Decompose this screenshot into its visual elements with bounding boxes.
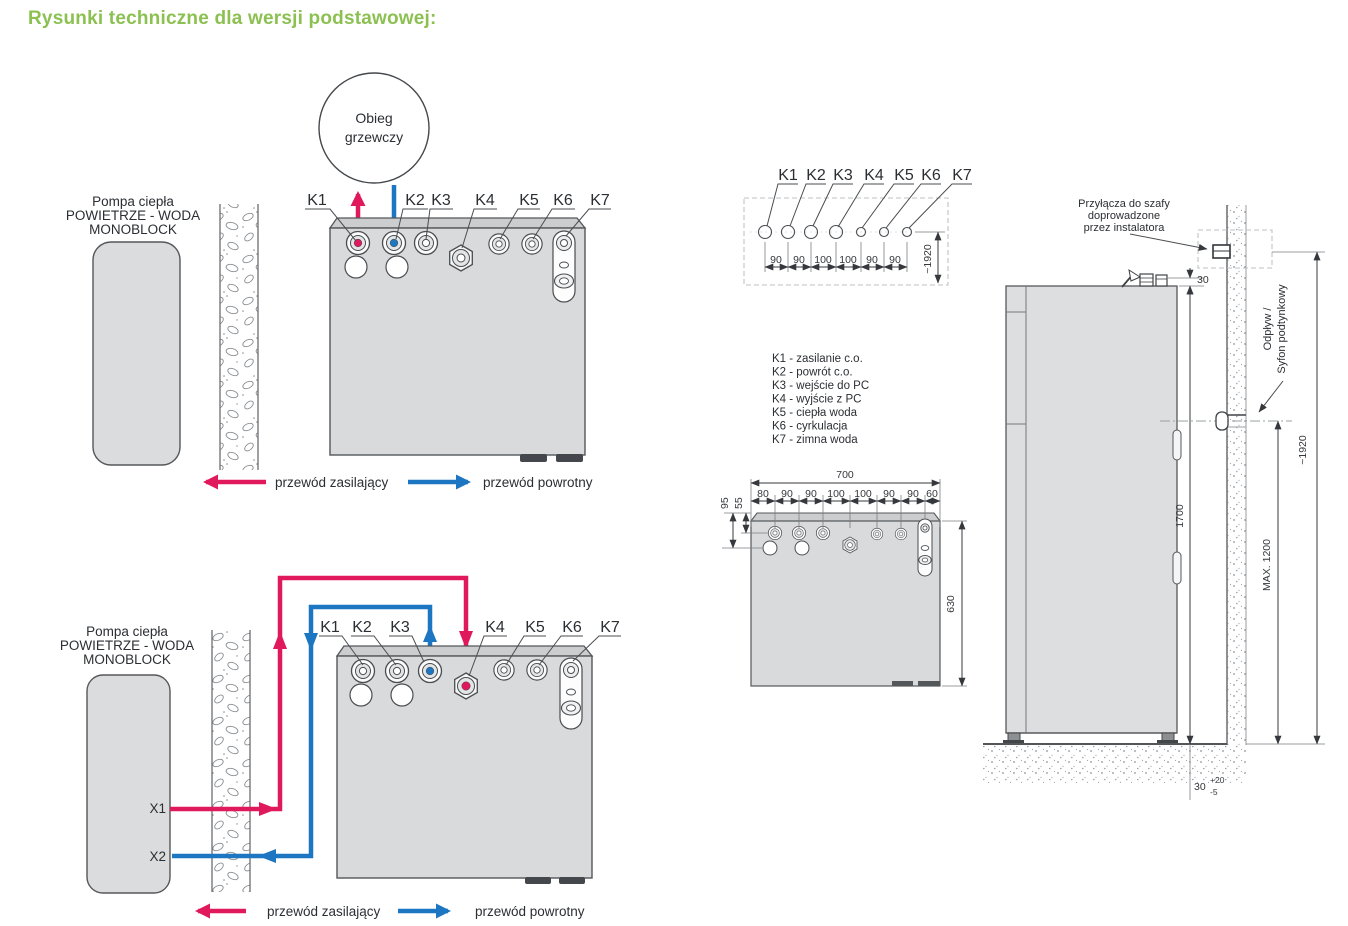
spacing-dimensions: 90 90 100 100 90 90 ~1920	[765, 232, 945, 283]
label-k3: K3	[390, 619, 410, 636]
legend-supply-label: przewód zasilający	[275, 475, 389, 490]
diagram-dimensioned-front-view: 700 80 90 90 100 100 90 90 60 95 55 63	[719, 469, 967, 686]
supply-arrow-right-icon	[259, 802, 277, 816]
dim-width: 700	[836, 469, 854, 481]
port-desc-k5: K5 - ciepła woda	[772, 407, 858, 419]
label-k7: K7	[600, 619, 620, 636]
dim-cabinet-height: 1700	[1174, 504, 1186, 528]
port-k4	[450, 245, 473, 271]
pump-label-line1: Pompa ciepła	[86, 624, 168, 639]
port-k4	[843, 537, 857, 553]
floor	[983, 744, 1246, 783]
heating-circuit-bubble: Obieg grzewczy	[319, 73, 429, 183]
wall-bracket-lower	[1173, 552, 1181, 584]
legend: przewód zasilający przewód powrotny	[198, 904, 585, 919]
dim-spacing-4: 100	[839, 254, 857, 266]
heating-circuit-line1: Obieg	[355, 110, 392, 126]
port-desc-k2: K2 - powrót c.o.	[772, 367, 853, 379]
label-k4: K4	[864, 167, 884, 184]
label-k5: K5	[519, 192, 539, 209]
port-k5	[489, 234, 509, 254]
legend: przewód zasilający przewód powrotny	[206, 475, 593, 490]
diagram-side-installation-view: Przyłącza do szafy doprowadzone przez in…	[983, 198, 1325, 800]
port-k6	[895, 528, 907, 540]
dim-offset-6: 90	[883, 488, 895, 500]
pump-label-line2: POWIETRZE - WODA	[66, 208, 200, 223]
pump-port-x1: X1	[149, 801, 166, 816]
label-k5: K5	[894, 167, 914, 184]
legend-return-label: przewód powrotny	[483, 475, 593, 490]
dim-offset-7: 90	[907, 488, 919, 500]
top-fittings	[1122, 270, 1167, 287]
label-k7: K7	[590, 192, 610, 209]
wall-section	[1227, 205, 1246, 745]
port-k5	[871, 528, 883, 540]
port-k3	[415, 232, 438, 255]
port-desc-k6: K6 - cyrkulacja	[772, 421, 848, 433]
installer-note-line2: doprowadzone	[1088, 210, 1160, 222]
height-dimension: 630	[942, 521, 967, 686]
port-k3	[816, 526, 829, 539]
label-k6: K6	[562, 619, 582, 636]
label-k2: K2	[352, 619, 372, 636]
diagram-pump-piping-schematic: Pompa ciepła POWIETRZE - WODA MONOBLOCK …	[60, 578, 621, 919]
dim-spacing-2: 90	[793, 254, 805, 266]
dim-offset-3: 90	[805, 488, 817, 500]
pump-label-line3: MONOBLOCK	[89, 222, 177, 237]
return-arrow-up-icon	[423, 625, 437, 642]
installer-note-line3: przez instalatora	[1084, 222, 1166, 234]
port-k7	[560, 658, 582, 729]
port-desc-k3: K3 - wejście do PC	[772, 380, 869, 392]
port-description-legend: K1 - zasilanie c.o. K2 - powrót c.o. K3 …	[772, 353, 869, 446]
port-k6	[527, 660, 547, 680]
dim-total-height: ~1920	[922, 244, 934, 274]
dim-offset-5: 100	[854, 488, 872, 500]
pump-label-line1: Pompa ciepła	[92, 194, 174, 209]
dim-total-height: ~1920	[1297, 435, 1309, 465]
port-k2	[386, 660, 409, 683]
tank-front-view	[751, 513, 940, 686]
label-k7: K7	[952, 167, 972, 184]
wall-section	[220, 204, 258, 470]
label-k3: K3	[833, 167, 853, 184]
port-desc-k1: K1 - zasilanie c.o.	[772, 353, 863, 365]
drain-label-line2: Syfon podtynkowy	[1276, 284, 1288, 374]
dim-max-height: MAX. 1200	[1261, 539, 1273, 591]
pump-label-line2: POWIETRZE - WODA	[60, 638, 194, 653]
heat-pump-unit: Pompa ciepła POWIETRZE - WODA MONOBLOCK …	[60, 624, 194, 893]
technical-drawings: Pompa ciepła POWIETRZE - WODA MONOBLOCK …	[0, 0, 1348, 926]
port-desc-k4: K4 - wyjście z PC	[772, 394, 861, 406]
tank-front-view	[330, 218, 585, 462]
port-k1	[352, 660, 375, 683]
outline-dashed-box	[744, 198, 948, 285]
dim-floor-gap: 30	[1194, 781, 1206, 793]
label-k1: K1	[778, 167, 798, 184]
wall-bracket-upper	[1173, 430, 1181, 460]
port-k2	[792, 526, 805, 539]
dim-row-offset-1: 95	[719, 497, 731, 509]
port-desc-k7: K7 - zimna woda	[772, 434, 858, 446]
label-k6: K6	[553, 192, 573, 209]
port-labels: K1 K2 K3 K4 K5 K6 K7	[767, 167, 972, 228]
dim-offset-4: 100	[827, 488, 845, 500]
cabinet-side-view	[1003, 270, 1181, 744]
dim-spacing-5: 90	[866, 254, 878, 266]
wall-section	[212, 630, 250, 892]
label-k6: K6	[921, 167, 941, 184]
adjustable-feet	[1003, 733, 1178, 744]
legend-supply-label: przewód zasilający	[267, 904, 381, 919]
label-k3: K3	[431, 192, 451, 209]
dim-row-offset-2: 55	[733, 497, 745, 509]
dim-offset-1: 80	[757, 488, 769, 500]
label-k4: K4	[475, 192, 495, 209]
dim-offset-2: 90	[781, 488, 793, 500]
supply-arrow-up-icon	[273, 631, 287, 649]
port-k5	[494, 660, 514, 680]
installer-note-line1: Przyłącza do szafy	[1078, 198, 1170, 210]
dim-spacing-1: 90	[770, 254, 782, 266]
dim-spacing-6: 90	[889, 254, 901, 266]
port-k7	[918, 519, 932, 576]
drain-label-line1: Odpływ /	[1262, 307, 1274, 351]
drain-connection: Odpływ / Syfon podtynkowy	[1160, 284, 1292, 430]
dim-floor-tolerance-plus: +20	[1210, 775, 1225, 785]
heat-pump-unit: Pompa ciepła POWIETRZE - WODA MONOBLOCK	[66, 194, 200, 465]
label-k1: K1	[307, 192, 327, 209]
port-k7	[553, 231, 575, 302]
heating-circuit-line2: grzewczy	[345, 129, 403, 145]
pump-port-x2: X2	[149, 849, 166, 864]
label-k2: K2	[806, 167, 826, 184]
pump-label-line3: MONOBLOCK	[83, 652, 171, 667]
tank-front-view	[337, 646, 592, 884]
dim-spacing-3: 100	[814, 254, 832, 266]
label-k1: K1	[320, 619, 340, 636]
diagram-heating-circuit-schematic: Pompa ciepła POWIETRZE - WODA MONOBLOCK …	[66, 73, 611, 490]
dim-height: 630	[945, 595, 957, 613]
label-k4: K4	[485, 619, 505, 636]
diagram-port-spacing-top-view: K1 K2 K3 K4 K5 K6 K7 90 90 100 100 90 90…	[744, 167, 972, 285]
dim-top-gap: 30	[1197, 274, 1209, 286]
dim-offset-8: 60	[926, 488, 938, 500]
return-arrow-down-icon	[304, 633, 318, 651]
label-k5: K5	[525, 619, 545, 636]
legend-return-label: przewód powrotny	[475, 904, 585, 919]
port-k6	[522, 234, 542, 254]
port-k1	[768, 526, 781, 539]
return-arrow-left-icon	[258, 849, 276, 863]
dim-floor-tolerance-minus: -5	[1210, 787, 1218, 797]
label-k2: K2	[405, 192, 425, 209]
